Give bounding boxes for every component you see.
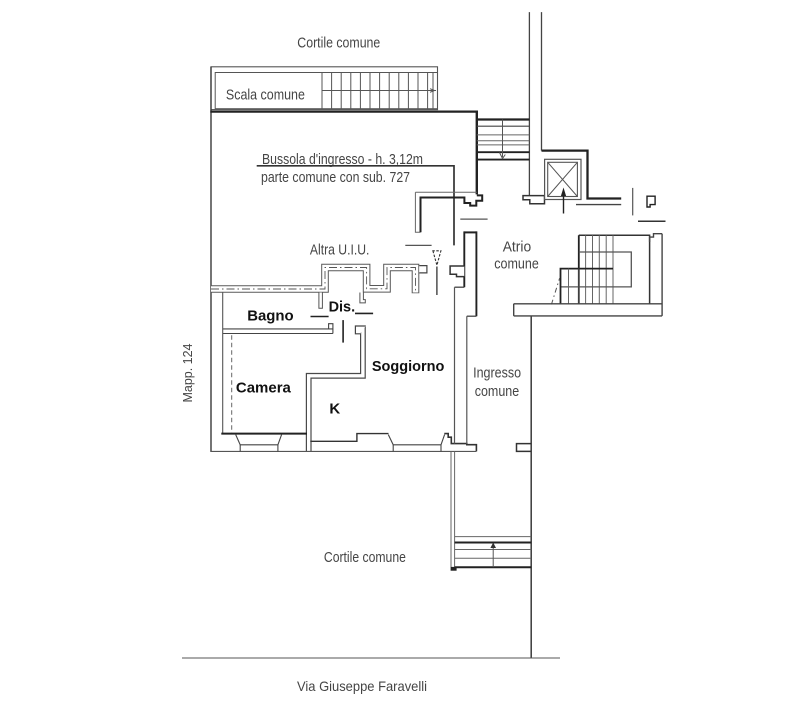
svg-text:parte comune con sub. 727: parte comune con sub. 727 — [261, 169, 410, 186]
svg-text:Via Giuseppe Faravelli: Via Giuseppe Faravelli — [297, 678, 427, 694]
svg-text:Cortile comune: Cortile comune — [324, 549, 406, 566]
svg-text:Camera: Camera — [236, 379, 292, 396]
svg-text:Cortile comune: Cortile comune — [297, 35, 380, 52]
svg-text:Ingresso: Ingresso — [473, 364, 521, 381]
svg-text:Dis.: Dis. — [329, 299, 356, 316]
svg-text:Bagno: Bagno — [247, 307, 294, 324]
svg-text:Scala comune: Scala comune — [226, 87, 305, 104]
svg-text:Altra U.I.U.: Altra U.I.U. — [310, 242, 370, 259]
svg-text:K: K — [329, 401, 340, 418]
svg-text:comune: comune — [494, 256, 539, 273]
svg-text:Mapp. 124: Mapp. 124 — [180, 344, 195, 403]
svg-text:Soggiorno: Soggiorno — [372, 358, 445, 375]
svg-text:Atrio: Atrio — [503, 238, 532, 255]
svg-text:comune: comune — [475, 383, 520, 400]
